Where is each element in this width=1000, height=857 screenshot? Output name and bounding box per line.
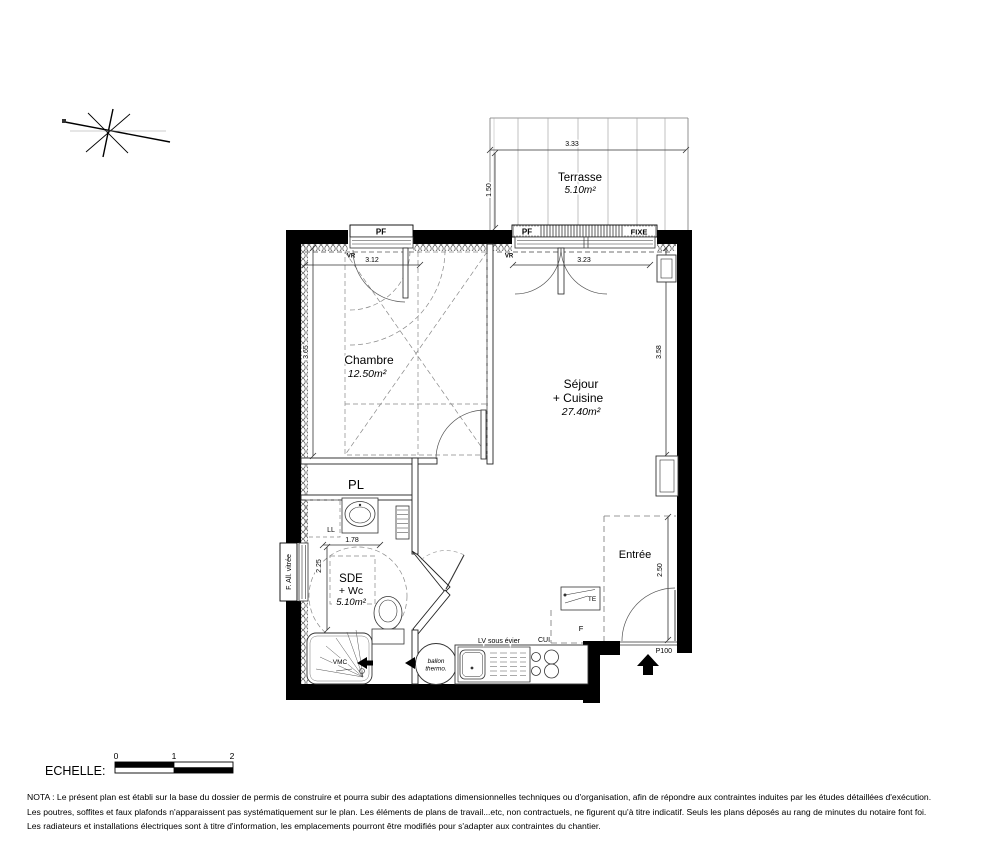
kitchen: LV sous évier CUI F TE <box>455 587 600 684</box>
electrical-panel: TE <box>561 587 600 610</box>
fridge-label: F <box>579 624 584 633</box>
te-label: TE <box>588 596 597 603</box>
sejour-name-line1: Séjour <box>564 377 599 391</box>
window-chambre-label: PF <box>376 228 386 237</box>
nota-line-2: Les poutres, soffites et faux plafonds n… <box>27 807 926 817</box>
sde-name-line1: SDE <box>339 573 363 585</box>
entree-zone-dashes <box>604 516 676 641</box>
room-chambre: Chambre 12.50m² 3.12 3.65 <box>302 245 487 459</box>
window-allege-vitree: F. All. vitrée <box>280 543 308 601</box>
sejour-frenchdoor-leaves <box>558 248 564 294</box>
scale-tick-0: 0 <box>114 751 119 761</box>
entrance-door-label: P100 <box>656 648 672 655</box>
chambre-window-leaf <box>403 248 408 298</box>
chambre-height-dimension <box>310 245 316 459</box>
sejour-height-label: 3.58 <box>656 345 663 359</box>
ballon-label-line2: thermo. <box>425 666 446 673</box>
nota-line-1: NOTA : Le présent plan est établi sur la… <box>27 792 931 802</box>
entrance-door: P100 <box>620 588 677 655</box>
chambre-door-leaf <box>481 410 486 459</box>
ballon-label-line1: ballon <box>428 658 445 665</box>
window-sejour-pf-label: PF <box>522 228 532 237</box>
nota-line-3: Les radiateurs et installations électriq… <box>27 821 601 831</box>
window-chambre: PF <box>350 225 413 248</box>
water-heater: ballon thermo. <box>416 644 457 685</box>
terrasse-width-label: 3.33 <box>565 141 579 148</box>
entree-height-label: 2.50 <box>657 563 664 577</box>
window-sejour: PF FIXE <box>512 225 657 248</box>
sejour-width-label: 3.23 <box>577 257 591 264</box>
terrasse-area-value: 5.10m² <box>564 185 596 196</box>
sejour-area-value: 27.40m² <box>561 406 601 418</box>
scale-label: ECHELLE: <box>45 764 105 778</box>
room-sejour: Séjour + Cuisine 27.40m² 3.23 3.58 <box>510 245 678 496</box>
scale-bar: ECHELLE: 0 1 2 <box>45 751 235 778</box>
sejour-frenchdoor-swing-left <box>515 248 561 294</box>
lv-sous-evier-label: LV sous évier <box>478 638 521 645</box>
window-allege-label: F. All. vitrée <box>286 554 293 590</box>
window-sejour-fixe-label: FIXE <box>631 228 648 237</box>
sde-area-value: 5.10m² <box>336 597 366 608</box>
scale-tick-2: 2 <box>230 751 235 761</box>
chambre-window-swing <box>353 250 405 302</box>
radiator-bottom <box>656 456 678 496</box>
entree-name: Entrée <box>619 549 651 561</box>
radiator-top <box>657 255 676 282</box>
sde-height-label: 2.25 <box>316 559 323 573</box>
vr-left-label: VR <box>347 254 356 260</box>
scale-tick-1: 1 <box>172 751 177 761</box>
chambre-area-value: 12.50m² <box>348 368 387 380</box>
floor-plan-svg: 3.33 1.50 Terrasse 5.10m² PF <box>0 0 1000 857</box>
shower: VMC <box>307 630 372 684</box>
vr-right-label: VR <box>505 254 514 260</box>
towel-radiator <box>396 506 409 539</box>
sde-door-swing <box>421 551 464 560</box>
room-pl: PL <box>348 477 364 492</box>
vmc-label: VMC <box>333 659 348 666</box>
pl-name: PL <box>348 477 364 492</box>
entrance-arrow-icon <box>637 654 659 675</box>
sde-height-dimension <box>324 544 330 633</box>
compass-rose-icon <box>62 109 170 157</box>
entree-height-dimension <box>665 514 671 643</box>
terrasse-width-dimension <box>487 147 689 153</box>
terrasse-depth-label: 1.50 <box>486 183 493 197</box>
washbasin <box>342 498 378 533</box>
chambre-name: Chambre <box>344 353 394 367</box>
chambre-height-label: 3.65 <box>303 345 310 359</box>
chambre-width-label: 3.12 <box>365 257 379 264</box>
floor-plan-page: 3.33 1.50 Terrasse 5.10m² PF <box>0 0 1000 857</box>
sejour-frenchdoor-swing-right <box>561 248 607 294</box>
sde-width-label: 1.78 <box>345 537 359 544</box>
room-sde: LL VMC <box>306 498 464 685</box>
kitchen-sink <box>458 647 530 682</box>
sde-name-line2: + Wc <box>339 585 363 597</box>
terrasse-area: 3.33 1.50 Terrasse 5.10m² <box>486 118 689 231</box>
washing-machine-label: LL <box>327 527 335 534</box>
sejour-name-line2: + Cuisine <box>553 391 604 405</box>
toilet <box>372 597 404 645</box>
terrasse-name: Terrasse <box>558 172 602 184</box>
cui-label: CUI <box>538 637 550 644</box>
sde-door-leaf <box>446 555 464 589</box>
